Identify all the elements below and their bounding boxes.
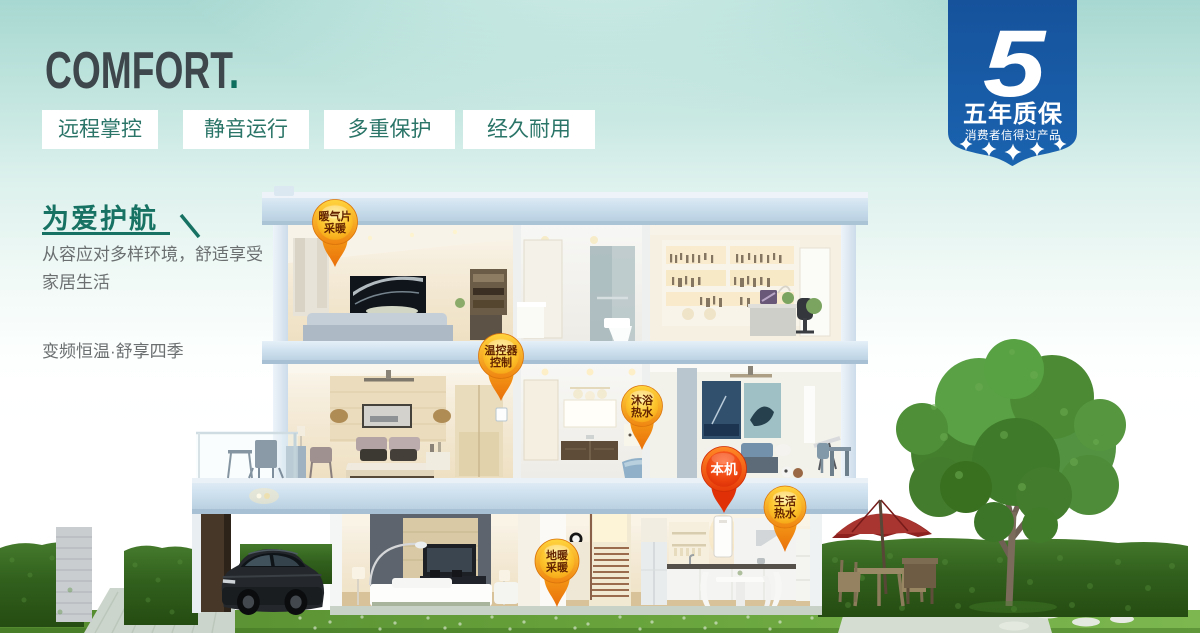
svg-text:本机: 本机 [711,461,739,477]
svg-text:暖气片: 暖气片 [319,209,352,223]
svg-text:热水: 热水 [774,506,797,520]
svg-text:温控器: 温控器 [485,343,519,357]
svg-text:五年质保: 五年质保 [963,100,1063,128]
svg-text:控制: 控制 [490,355,512,369]
svg-text:沐浴: 沐浴 [631,393,654,407]
svg-text:地暖: 地暖 [546,548,569,562]
svg-text:采暖: 采暖 [545,560,569,574]
svg-text:消费者信得过产品: 消费者信得过产品 [965,128,1061,142]
svg-text:采暖: 采暖 [323,221,347,235]
svg-text:生活: 生活 [774,494,796,508]
svg-text:热水: 热水 [631,405,654,419]
